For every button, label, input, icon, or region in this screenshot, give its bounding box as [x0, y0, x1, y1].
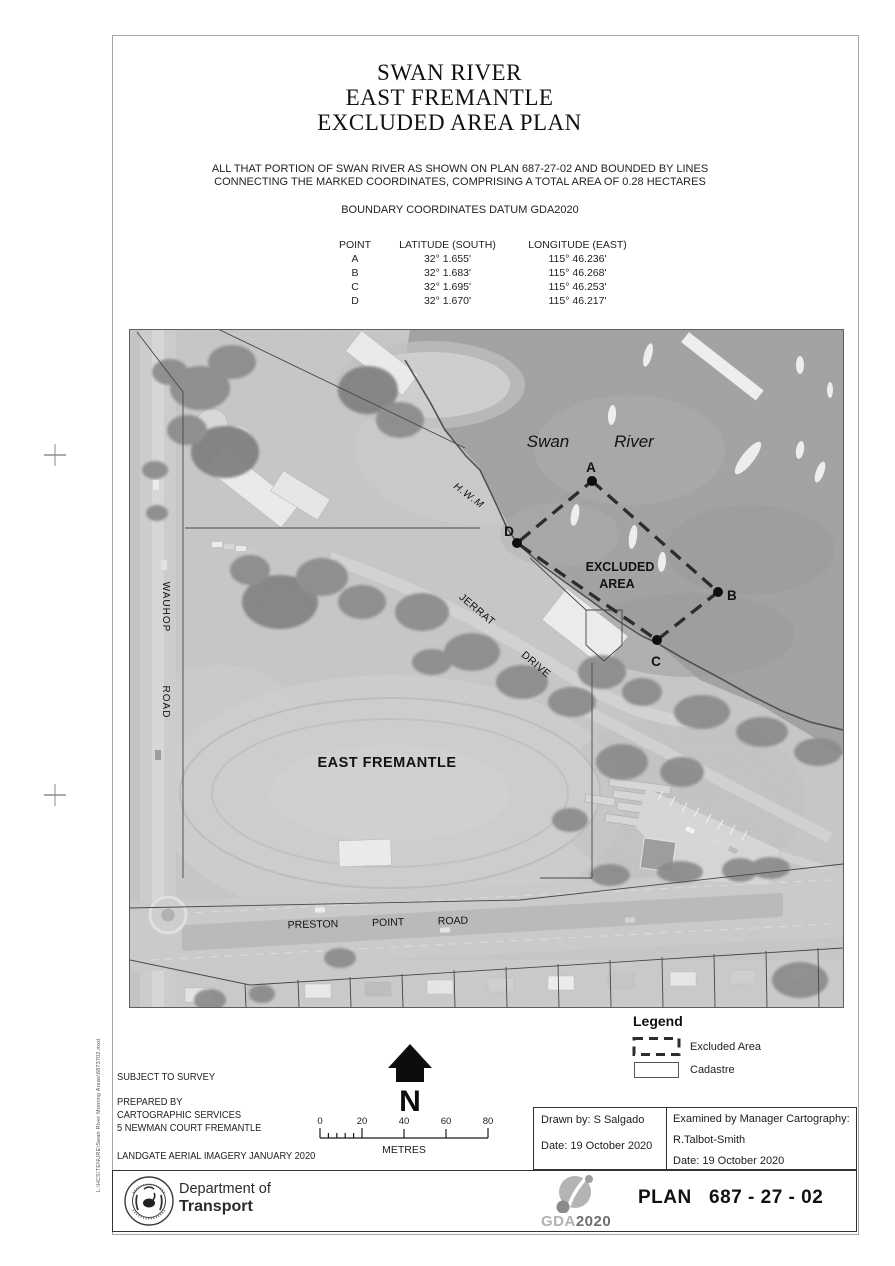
- note-subject-to-survey: SUBJECT TO SURVEY: [117, 1072, 215, 1083]
- legend-item-label: Cadastre: [690, 1064, 735, 1076]
- department-line-1: Department of: [179, 1181, 271, 1197]
- plan-sheet: L:\HCS\TENURE\Swan River Mooring Areas\6…: [0, 0, 895, 1266]
- point-marker-d: [512, 538, 522, 548]
- point-label-b: B: [727, 588, 737, 603]
- legend-item-label: Excluded Area: [690, 1041, 761, 1053]
- drawn-date: Date: 19 October 2020: [541, 1140, 652, 1152]
- longitude-value: 115° 46.236': [510, 252, 645, 266]
- scale-tick-label: 0: [317, 1116, 322, 1127]
- point-label-c: C: [651, 654, 661, 669]
- file-path-label: L:\HCS\TENURE\Swan River Mooring Areas\6…: [96, 1026, 102, 1192]
- col-point: POINT: [325, 238, 385, 252]
- col-latitude: LATITUDE (SOUTH): [385, 238, 510, 252]
- examined-by-cell: Examined by Manager Cartography: R.Talbo…: [666, 1108, 856, 1169]
- drawn-by: Drawn by: S Salgado: [541, 1114, 644, 1126]
- registration-cross-icon: [44, 784, 66, 806]
- longitude-value: 115° 46.217': [510, 294, 645, 308]
- latitude-value: 32° 1.655': [385, 252, 510, 266]
- point-marker-c: [652, 635, 662, 645]
- point-label-d: D: [504, 524, 514, 539]
- point-id: A: [325, 252, 385, 266]
- point-label-a: A: [586, 460, 596, 475]
- registration-cross-icon: [44, 444, 66, 466]
- point-marker-b: [713, 587, 723, 597]
- legend-title: Legend: [633, 1013, 683, 1029]
- cadastre-swatch: [634, 1062, 679, 1078]
- scale-tick-label: 40: [399, 1116, 410, 1127]
- drawn-by-cell: Drawn by: S Salgado Date: 19 October 202…: [534, 1108, 666, 1169]
- river-name-label: River: [614, 432, 655, 451]
- department-line-2: Transport: [179, 1198, 253, 1216]
- wa-government-crest-icon: [123, 1175, 175, 1227]
- gda-year-text: 2020: [576, 1213, 611, 1230]
- point-id: C: [325, 280, 385, 294]
- plan-title: SWAN RIVER EAST FREMANTLE EXCLUDED AREA …: [112, 60, 787, 135]
- point-id: D: [325, 294, 385, 308]
- longitude-value: 115° 46.268': [510, 266, 645, 280]
- title-line-3: EXCLUDED AREA PLAN: [112, 110, 787, 135]
- photo-grain: [130, 330, 843, 1007]
- table-row: C 32° 1.695' 115° 46.253': [325, 280, 645, 294]
- wauhop-road-label: WAUHOP: [160, 582, 171, 633]
- latitude-value: 32° 1.683': [385, 266, 510, 280]
- longitude-value: 115° 46.253': [510, 280, 645, 294]
- description: ALL THAT PORTION OF SWAN RIVER AS SHOWN …: [112, 163, 808, 189]
- suburb-label: EAST FREMANTLE: [317, 755, 456, 771]
- point-marker-a: [587, 476, 597, 486]
- note-prepared-by: PREPARED BY: [117, 1097, 182, 1108]
- excluded-area-swatch: [631, 1036, 683, 1057]
- gda2020-logo-text: GDA2020: [541, 1213, 611, 1230]
- gda2020-logo-icon: [545, 1171, 615, 1213]
- description-line-1: ALL THAT PORTION OF SWAN RIVER AS SHOWN …: [112, 163, 808, 176]
- title-line-2: EAST FREMANTLE: [112, 85, 787, 110]
- scale-tick-label: 60: [441, 1116, 452, 1127]
- excluded-area-label: AREA: [599, 577, 634, 591]
- north-label: N: [399, 1085, 421, 1116]
- title-line-1: SWAN RIVER: [112, 60, 787, 85]
- table-row: D 32° 1.670' 115° 46.217': [325, 294, 645, 308]
- examined-date: Date: 19 October 2020: [673, 1155, 784, 1167]
- aerial-map: Swan River A B C D EXCLUDED AREA EAST FR…: [130, 330, 843, 1007]
- title-block-footer: Department of Transport GDA2020 PLAN 687…: [112, 1170, 857, 1232]
- examined-title: Examined by Manager Cartography:: [673, 1113, 850, 1125]
- plan-number: PLAN 687 - 27 - 02: [638, 1187, 823, 1209]
- latitude-value: 32° 1.670': [385, 294, 510, 308]
- note-address: 5 NEWMAN COURT FREMANTLE: [117, 1123, 261, 1134]
- aerial-map-canvas: Swan River A B C D EXCLUDED AREA EAST FR…: [130, 330, 843, 1007]
- note-cartographic-services: CARTOGRAPHIC SERVICES: [117, 1110, 241, 1121]
- note-imagery-source: LANDGATE AERIAL IMAGERY JANUARY 2020: [117, 1151, 315, 1162]
- scale-unit-label: METRES: [382, 1144, 426, 1156]
- table-row: B 32° 1.683' 115° 46.268': [325, 266, 645, 280]
- scale-tick-label: 20: [357, 1116, 368, 1127]
- description-line-2: CONNECTING THE MARKED COORDINATES, COMPR…: [112, 176, 808, 189]
- north-arrow-icon: N: [385, 1041, 435, 1116]
- gda-text: GDA: [541, 1213, 576, 1230]
- coordinates-header-row: POINT LATITUDE (SOUTH) LONGITUDE (EAST): [325, 238, 645, 252]
- examiner-name: R.Talbot-Smith: [673, 1134, 745, 1146]
- latitude-value: 32° 1.695': [385, 280, 510, 294]
- datum-note: BOUNDARY COORDINATES DATUM GDA2020: [112, 204, 808, 216]
- river-name-label: Swan: [527, 432, 570, 451]
- col-longitude: LONGITUDE (EAST): [510, 238, 645, 252]
- scale-bar: 0 20 40 60 80 METRES: [313, 1114, 498, 1158]
- coordinates-table: POINT LATITUDE (SOUTH) LONGITUDE (EAST) …: [325, 238, 645, 308]
- table-row: A 32° 1.655' 115° 46.236': [325, 252, 645, 266]
- point-id: B: [325, 266, 385, 280]
- excluded-area-label: EXCLUDED: [586, 560, 655, 574]
- scale-tick-label: 80: [483, 1116, 494, 1127]
- approval-table: Drawn by: S Salgado Date: 19 October 202…: [533, 1107, 857, 1170]
- wauhop-road-label: ROAD: [160, 686, 171, 719]
